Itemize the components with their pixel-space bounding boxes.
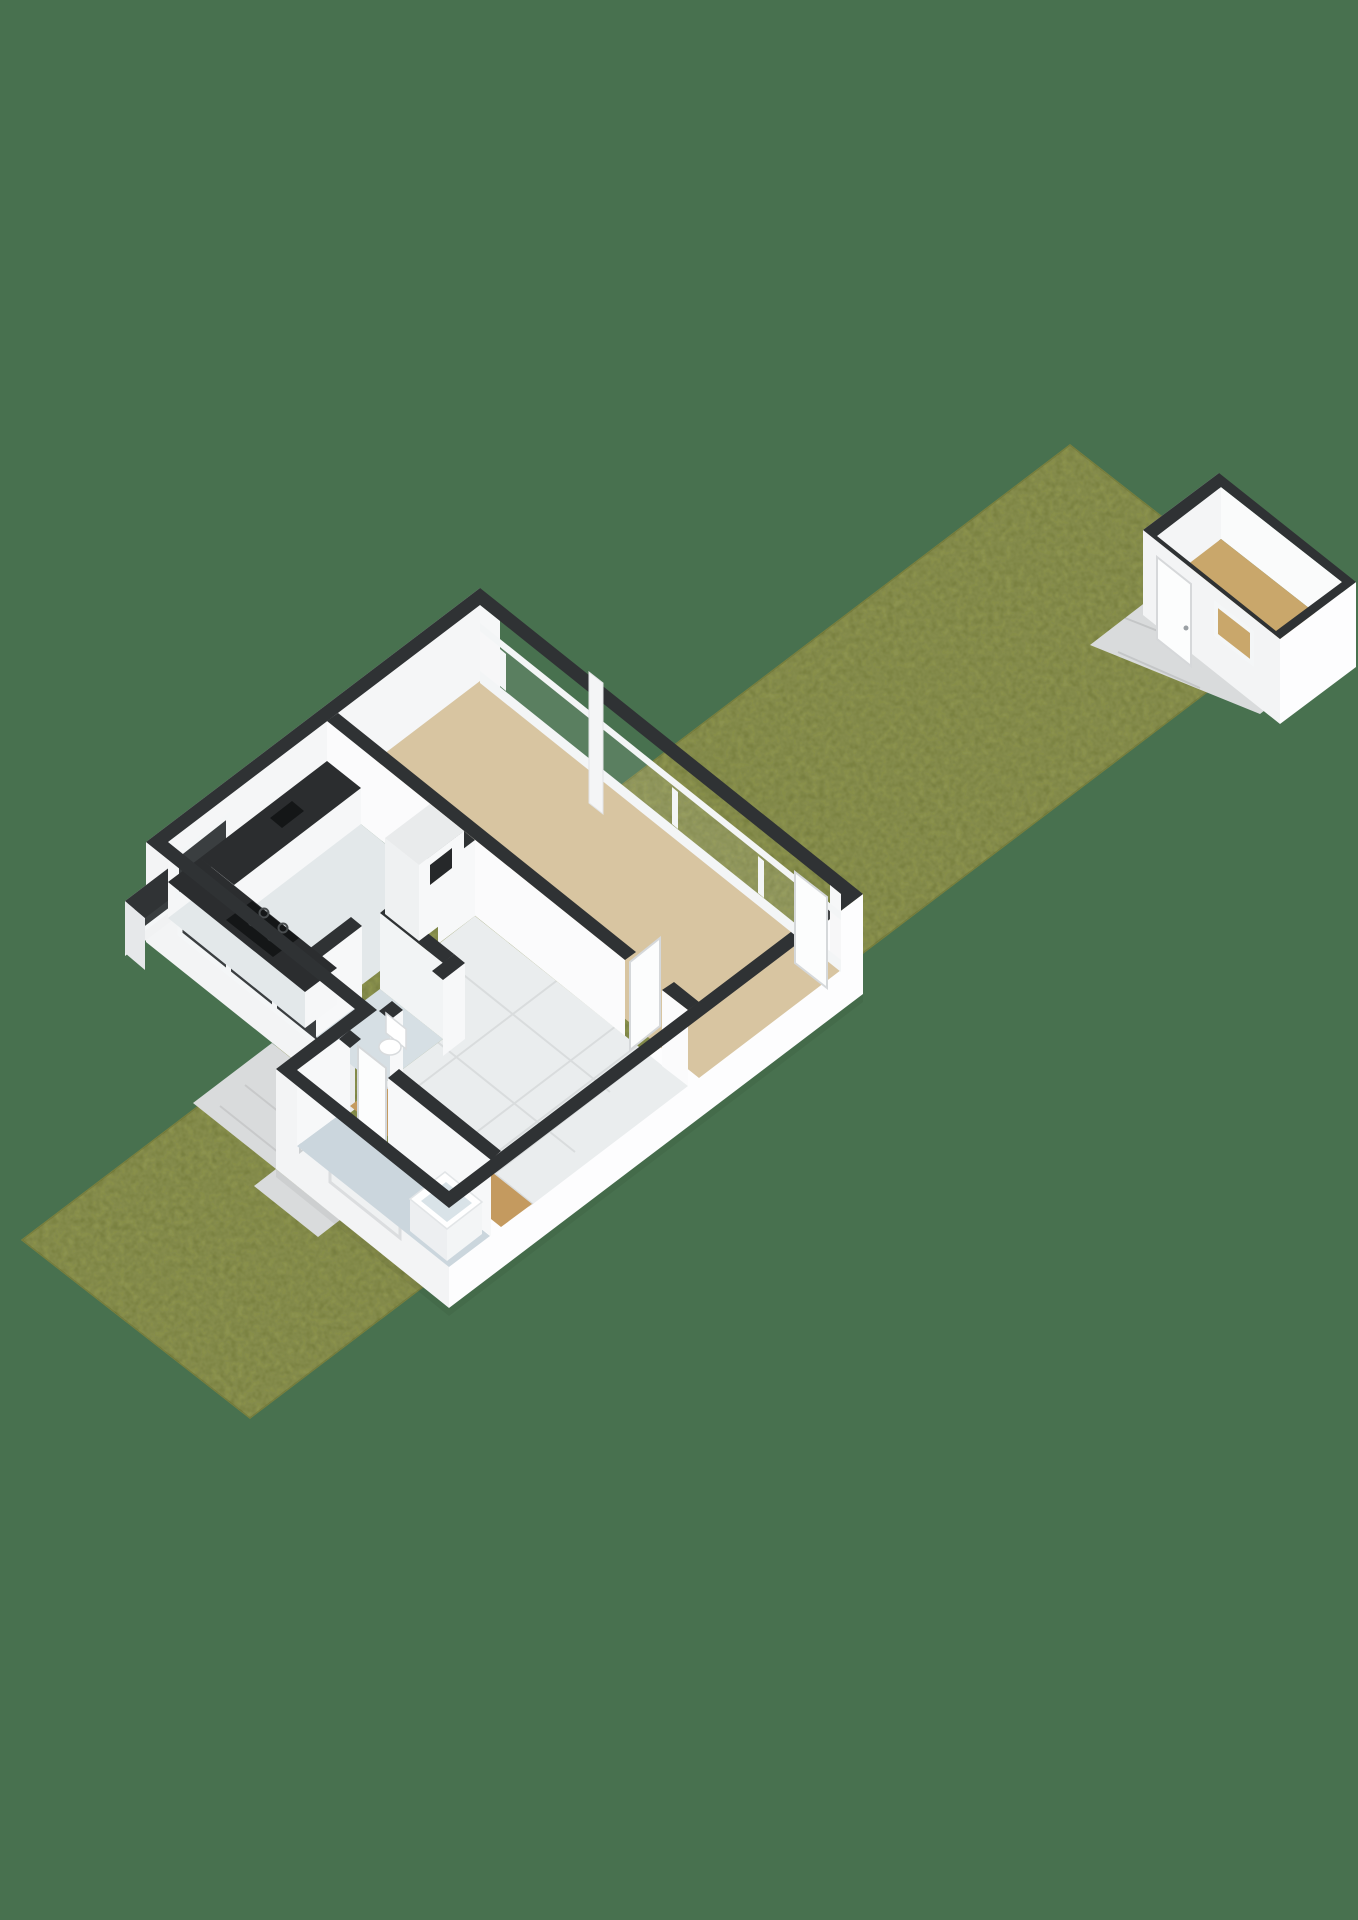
window-mullion (672, 787, 678, 829)
window-mullion (758, 856, 764, 898)
floorplan-canvas (0, 0, 1358, 1920)
window-pillar (589, 672, 603, 814)
window-mullion (500, 649, 506, 691)
floorplan-3d-render (0, 0, 1358, 1920)
shed-door-handle-icon (1184, 626, 1189, 631)
